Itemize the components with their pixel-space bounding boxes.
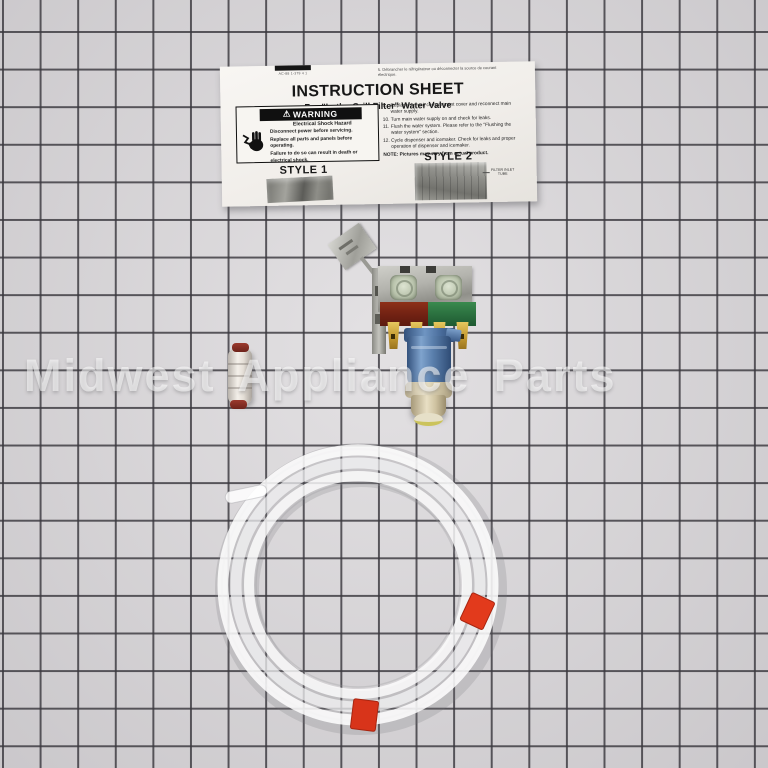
warning-line-3: Failure to do so can result in death or …: [270, 150, 375, 165]
warning-text: Electrical Shock Hazard Disconnect power…: [270, 120, 376, 161]
steps-column: 9. Replace the unit compartment cover an…: [382, 102, 516, 158]
outlet-tip-oring: [414, 413, 443, 426]
coupling-rib: [228, 375, 252, 377]
solenoid-cap-right: [435, 275, 462, 300]
instruction-sheet: AC-88 1-379 4 1 5. Débrancher le réfrigé…: [220, 61, 537, 206]
barcode-bar: [275, 65, 311, 71]
tubing-ring: [249, 476, 467, 694]
mounting-tab: [328, 223, 377, 270]
coupling-rib: [228, 363, 252, 365]
bracket-notch: [400, 266, 410, 273]
warning-hazard: Electrical Shock Hazard: [270, 120, 375, 129]
step-9: 9. Replace the unit compartment cover an…: [382, 102, 515, 116]
electrical-shock-icon: [238, 122, 271, 162]
tubing-coil: [203, 430, 518, 745]
warning-header: ⚠ WARNING: [259, 107, 361, 121]
product-photo: AC-88 1-379 4 1 5. Débrancher le réfrigé…: [0, 0, 768, 768]
style1-photo: [266, 176, 333, 203]
step-12: 12. Cycle dispenser and icemaker. Check …: [383, 137, 516, 151]
cap-ring: [441, 280, 458, 297]
style2-callout: FILTER INLET TUBE: [489, 168, 517, 177]
bracket-notch: [426, 266, 436, 273]
warning-line-2: Replace all parts and panels before oper…: [270, 136, 375, 151]
warning-triangle-icon: ⚠: [283, 109, 291, 120]
tubing-ring: [236, 463, 480, 707]
warning-body: Electrical Shock Hazard Disconnect power…: [237, 119, 379, 162]
solenoid-cap-left: [390, 275, 417, 300]
spade-terminal: [387, 322, 400, 349]
valve-body-highlight: [411, 346, 447, 349]
terminal-hole: [391, 334, 395, 339]
warning-box: ⚠ WARNING Electrical Shock Hazard: [235, 104, 379, 163]
cap-ring: [396, 280, 413, 297]
french-note: 5. Débrancher le réfrigérateur ou déconn…: [378, 65, 516, 77]
style2-photo: [415, 162, 488, 200]
coupling-collet-bottom: [230, 400, 247, 409]
warning-header-label: WARNING: [293, 108, 338, 119]
coupling-body: [228, 349, 252, 404]
tape-band-bottom: [350, 699, 378, 732]
style1-label: STYLE 1: [280, 164, 328, 177]
tab-slot: [345, 245, 358, 255]
coupling-rib: [228, 387, 252, 389]
valve-body: [407, 336, 451, 386]
union-coupling: [227, 343, 255, 410]
water-valve-assembly: [330, 228, 480, 433]
part-code: AC-88 1-379 4 1: [260, 71, 326, 76]
step-11: 11. Flush the water system. Please refer…: [383, 123, 516, 137]
coupling-collet-top: [232, 343, 249, 352]
